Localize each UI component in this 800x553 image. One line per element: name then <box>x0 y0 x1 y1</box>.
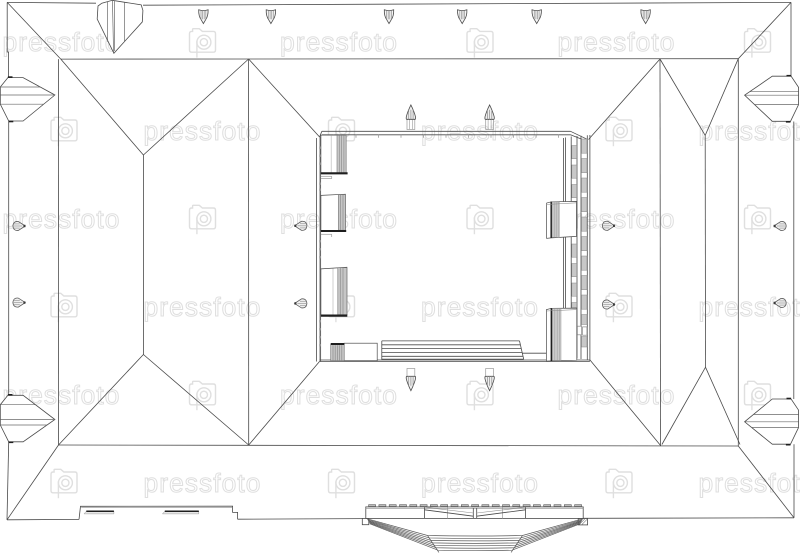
svg-text:pressfoto: pressfoto <box>699 470 800 498</box>
svg-text:pressfoto: pressfoto <box>144 294 262 322</box>
svg-text:pressfoto: pressfoto <box>421 118 539 146</box>
svg-text:pressfoto: pressfoto <box>421 294 539 322</box>
svg-text:pressfoto: pressfoto <box>558 382 676 410</box>
svg-text:pressfoto: pressfoto <box>280 382 398 410</box>
svg-text:pressfoto: pressfoto <box>144 118 262 146</box>
svg-text:pressfoto: pressfoto <box>280 29 398 57</box>
svg-text:pressfoto: pressfoto <box>558 29 676 57</box>
svg-text:pressfoto: pressfoto <box>699 118 800 146</box>
svg-text:pressfoto: pressfoto <box>144 470 262 498</box>
svg-text:pressfoto: pressfoto <box>699 294 800 322</box>
svg-text:pressfoto: pressfoto <box>421 470 539 498</box>
svg-text:pressfoto: pressfoto <box>3 29 121 57</box>
